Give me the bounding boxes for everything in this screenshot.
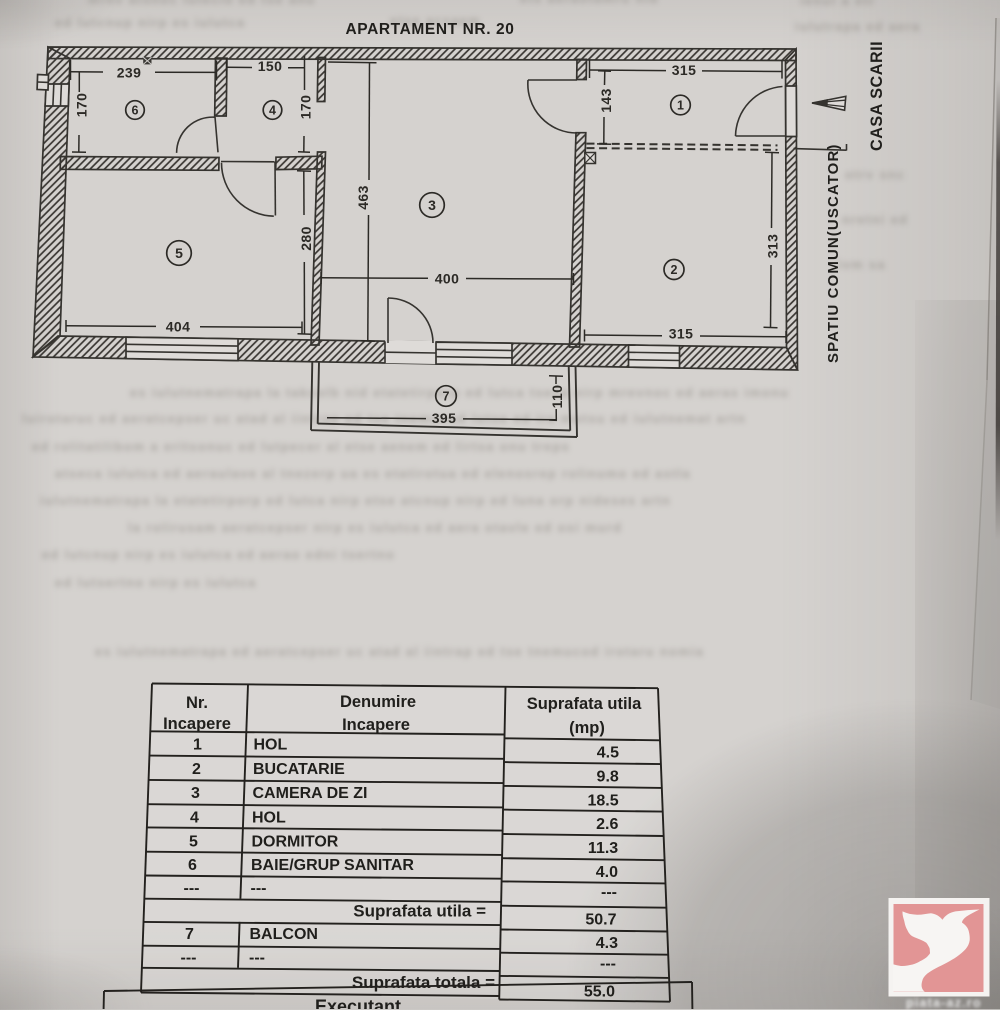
svg-text:55.0: 55.0 xyxy=(584,984,615,1001)
svg-text:---: --- xyxy=(184,880,200,897)
svg-text:6: 6 xyxy=(132,104,139,118)
svg-text:DORMITOR: DORMITOR xyxy=(252,833,339,850)
svg-text:3: 3 xyxy=(191,785,200,802)
svg-text:BAIE/GRUP SANITAR: BAIE/GRUP SANITAR xyxy=(251,857,414,874)
svg-text:(mp): (mp) xyxy=(569,719,605,737)
svg-text:50.7: 50.7 xyxy=(585,912,616,929)
svg-text:2: 2 xyxy=(671,263,678,277)
svg-text:Incapere: Incapere xyxy=(163,715,231,733)
svg-text:---: --- xyxy=(601,884,617,901)
svg-text:400: 400 xyxy=(435,271,460,287)
svg-text:9.8: 9.8 xyxy=(597,769,619,786)
svg-text:2: 2 xyxy=(192,761,201,778)
svg-text:Suprafata utila =: Suprafata utila = xyxy=(353,902,486,921)
svg-text:463: 463 xyxy=(355,185,371,210)
svg-text:313: 313 xyxy=(765,234,781,259)
svg-text:1: 1 xyxy=(677,99,684,113)
svg-text:170: 170 xyxy=(298,95,314,120)
svg-text:Suprafata utila: Suprafata utila xyxy=(527,695,642,713)
svg-text:239: 239 xyxy=(117,65,142,81)
svg-text:Nr.: Nr. xyxy=(186,694,208,712)
svg-text:3: 3 xyxy=(428,197,436,213)
svg-text:HOL: HOL xyxy=(254,737,288,754)
svg-text:CASA SCARII: CASA SCARII xyxy=(868,41,886,151)
svg-text:143: 143 xyxy=(598,88,614,113)
svg-text:APARTAMENT NR. 20: APARTAMENT NR. 20 xyxy=(346,21,515,38)
svg-text:7: 7 xyxy=(443,390,450,404)
svg-text:18.5: 18.5 xyxy=(587,792,618,809)
svg-text:Incapere: Incapere xyxy=(342,716,410,734)
svg-text:6: 6 xyxy=(188,857,197,874)
svg-text:Denumire: Denumire xyxy=(340,693,416,711)
svg-text:4.3: 4.3 xyxy=(596,935,618,952)
svg-text:Suprafata totala =: Suprafata totala = xyxy=(352,973,495,992)
svg-text:2.6: 2.6 xyxy=(596,816,618,833)
svg-text:BALCON: BALCON xyxy=(250,926,318,943)
svg-text:HOL: HOL xyxy=(252,809,286,826)
svg-text:SPATIU COMUN(USCATOR): SPATIU COMUN(USCATOR) xyxy=(825,144,842,363)
svg-text:315: 315 xyxy=(672,62,697,78)
svg-text:395: 395 xyxy=(432,410,457,426)
svg-text:Executant: Executant xyxy=(315,997,401,1010)
svg-text:---: --- xyxy=(251,880,267,897)
svg-text:5: 5 xyxy=(175,245,183,261)
svg-text:---: --- xyxy=(181,950,197,967)
svg-text:4: 4 xyxy=(190,809,199,826)
svg-text:---: --- xyxy=(600,956,616,973)
svg-text:150: 150 xyxy=(258,58,283,74)
svg-text:7: 7 xyxy=(185,926,194,943)
svg-text:1: 1 xyxy=(193,737,202,754)
svg-text:404: 404 xyxy=(166,319,191,335)
svg-text:4: 4 xyxy=(269,104,276,118)
svg-text:110: 110 xyxy=(549,385,565,409)
svg-text:BUCATARIE: BUCATARIE xyxy=(253,761,345,778)
svg-text:315: 315 xyxy=(669,326,694,342)
svg-text:5: 5 xyxy=(189,833,198,850)
svg-text:280: 280 xyxy=(298,226,314,251)
svg-text:CAMERA DE ZI: CAMERA DE ZI xyxy=(253,785,368,802)
svg-text:170: 170 xyxy=(74,93,90,118)
svg-text:11.3: 11.3 xyxy=(588,840,618,857)
svg-text:---: --- xyxy=(249,950,265,967)
svg-text:4.5: 4.5 xyxy=(597,745,619,762)
svg-text:4.0: 4.0 xyxy=(596,864,618,881)
